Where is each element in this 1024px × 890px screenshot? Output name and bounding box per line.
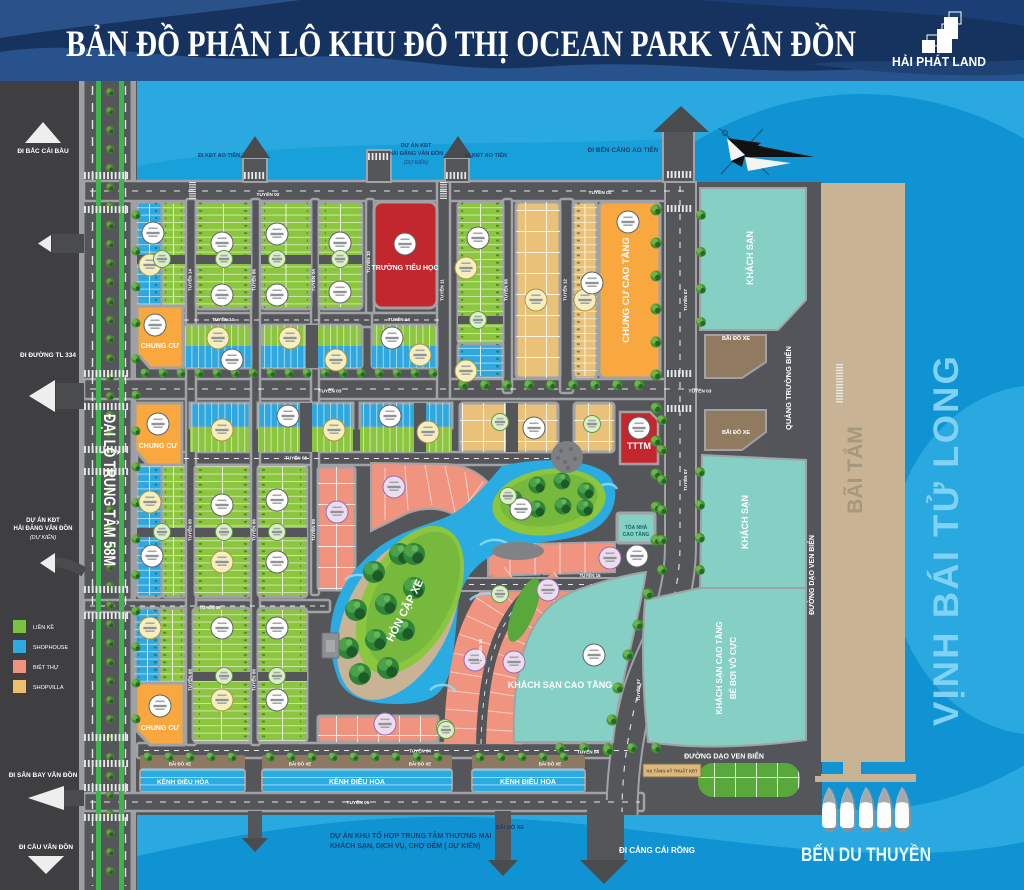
svg-text:TUYẾN 07: TUYẾN 07 bbox=[635, 679, 641, 701]
svg-text:TUYẾN 03: TUYẾN 03 bbox=[689, 388, 712, 395]
svg-text:TUYẾN 04: TUYẾN 04 bbox=[577, 749, 599, 755]
svg-text:ĐI KĐT AO TIÊN: ĐI KĐT AO TIÊN bbox=[198, 151, 240, 159]
svg-text:TUYẾN 15: TUYẾN 15 bbox=[477, 639, 483, 661]
svg-text:(DỰ KIẾN): (DỰ KIẾN) bbox=[404, 158, 428, 166]
svg-text:TUYẾN 14: TUYẾN 14 bbox=[388, 316, 410, 322]
svg-text:BÃI TẮM: BÃI TẮM bbox=[843, 426, 867, 514]
svg-text:TUYẾN 06: TUYẾN 06 bbox=[503, 279, 509, 301]
svg-text:TUYẾN 15: TUYẾN 15 bbox=[580, 573, 602, 578]
svg-text:TUYẾN 08: TUYẾN 08 bbox=[285, 455, 307, 461]
svg-text:BIỆT THỰ: BIỆT THỰ bbox=[33, 663, 59, 671]
svg-text:KHÁCH SẠN CAO TẦNG: KHÁCH SẠN CAO TẦNG bbox=[508, 680, 613, 690]
svg-text:DỰ ÁN KHU TỔ HỢP TRUNG TÂM THƯ: DỰ ÁN KHU TỔ HỢP TRUNG TÂM THƯƠNG MẠI bbox=[330, 831, 492, 840]
svg-text:TUYẾN 08: TUYẾN 08 bbox=[187, 669, 193, 691]
svg-text:ĐI ĐƯỜNG TL 334: ĐI ĐƯỜNG TL 334 bbox=[20, 350, 76, 359]
svg-text:BÃI ĐỖ XE: BÃI ĐỖ XE bbox=[289, 762, 312, 767]
svg-text:TTTM: TTTM bbox=[627, 441, 651, 451]
svg-text:TUYẾN 02: TUYẾN 02 bbox=[257, 191, 280, 198]
svg-text:CHUNG CƯ: CHUNG CƯ bbox=[139, 443, 178, 450]
svg-text:BÃI ĐỖ XE: BÃI ĐỖ XE bbox=[496, 824, 524, 831]
svg-text:BÃI ĐỖ XE: BÃI ĐỖ XE bbox=[722, 429, 750, 436]
svg-text:TUYẾN 02: TUYẾN 02 bbox=[589, 189, 612, 196]
svg-text:DỰ ÁN KĐT: DỰ ÁN KĐT bbox=[26, 517, 60, 524]
svg-text:TUYẾN 11: TUYẾN 11 bbox=[439, 279, 445, 301]
svg-text:TUYẾN 0A: TUYẾN 0A bbox=[310, 268, 316, 291]
svg-text:ĐƯỜNG DẠO VEN BIỂN: ĐƯỜNG DẠO VEN BIỂN bbox=[684, 752, 764, 761]
svg-text:KHÁCH SẠN: KHÁCH SẠN bbox=[740, 495, 750, 549]
svg-text:TRƯỜNG TIỂU HỌC: TRƯỜNG TIỂU HỌC bbox=[372, 263, 439, 272]
svg-text:TÒA NHÀ: TÒA NHÀ bbox=[625, 523, 648, 531]
svg-text:TUYẾN 07: TUYẾN 07 bbox=[682, 289, 688, 311]
svg-text:SHOPVILLA: SHOPVILLA bbox=[33, 685, 64, 691]
svg-text:TUYẾN 05: TUYẾN 05 bbox=[347, 799, 370, 806]
svg-text:BÃI ĐỖ XE: BÃI ĐỖ XE bbox=[409, 762, 432, 767]
svg-text:TUYẾN 07: TUYẾN 07 bbox=[682, 469, 688, 491]
svg-text:HẢI ĐĂNG VÂN ĐỒN: HẢI ĐĂNG VÂN ĐỒN bbox=[389, 150, 443, 157]
svg-text:ĐẠI LỘ TRUNG TÂM 58M: ĐẠI LỘ TRUNG TÂM 58M bbox=[100, 414, 119, 566]
svg-text:VỊNH BÁI TỬ LONG: VỊNH BÁI TỬ LONG bbox=[926, 354, 966, 726]
svg-text:TUYẾN 08: TUYẾN 08 bbox=[187, 519, 193, 541]
svg-text:TUYẾN 09: TUYẾN 09 bbox=[310, 519, 316, 541]
svg-text:TUYẾN 10: TUYẾN 10 bbox=[365, 251, 371, 273]
svg-text:(DỰ KIẾN): (DỰ KIẾN) bbox=[30, 533, 57, 541]
svg-text:TUYẾN 06: TUYẾN 06 bbox=[251, 269, 257, 291]
svg-text:TUYẾN 06: TUYẾN 06 bbox=[251, 669, 257, 691]
svg-text:HẢI PHÁT LAND: HẢI PHÁT LAND bbox=[892, 54, 986, 69]
svg-text:KHÁCH SẠN: KHÁCH SẠN bbox=[745, 231, 755, 285]
svg-text:BÃI ĐỖ XE: BÃI ĐỖ XE bbox=[169, 762, 192, 767]
svg-text:KHÁCH SẠN CAO TẦNG: KHÁCH SẠN CAO TẦNG bbox=[714, 622, 724, 715]
svg-text:CAO TẦNG: CAO TẦNG bbox=[623, 531, 650, 538]
svg-text:TUYẾN 06: TUYẾN 06 bbox=[251, 519, 257, 541]
svg-text:LIỀN KỀ: LIỀN KỀ bbox=[33, 624, 54, 631]
svg-text:TUYẾN 14: TUYẾN 14 bbox=[212, 316, 234, 322]
svg-text:ĐI KĐT AO TIÊN: ĐI KĐT AO TIÊN bbox=[465, 151, 507, 159]
svg-text:TUYẾN 09: TUYẾN 09 bbox=[200, 605, 222, 610]
svg-text:BỂ BƠI VÔ CỰC: BỂ BƠI VÔ CỰC bbox=[729, 637, 738, 700]
svg-text:BÃI ĐỖ XE: BÃI ĐỖ XE bbox=[722, 335, 750, 342]
svg-text:HẠ TẦNG KỸ THUẬT KĐT: HẠ TẦNG KỸ THUẬT KĐT bbox=[646, 769, 698, 774]
svg-text:ĐƯỜNG DẠO VEN BIỂN: ĐƯỜNG DẠO VEN BIỂN bbox=[807, 535, 816, 615]
svg-text:BÃI ĐỖ XE: BÃI ĐỖ XE bbox=[539, 762, 562, 767]
svg-text:TUYẾN 12: TUYẾN 12 bbox=[562, 279, 568, 301]
svg-text:CHUNG CƯ CAO TẦNG: CHUNG CƯ CAO TẦNG bbox=[621, 237, 632, 343]
svg-text:BẾN DU THUYỀN: BẾN DU THUYỀN bbox=[801, 843, 931, 866]
svg-text:CHUNG CƯ: CHUNG CƯ bbox=[141, 343, 180, 350]
svg-text:ĐI CẢNG CÁI RỒNG: ĐI CẢNG CÁI RỒNG bbox=[619, 845, 695, 855]
svg-text:TUYẾN 03: TUYẾN 03 bbox=[319, 388, 342, 395]
svg-text:SHOPHOUSE: SHOPHOUSE bbox=[33, 645, 68, 651]
svg-text:QUẢNG TRƯỜNG BIỂN: QUẢNG TRƯỜNG BIỂN bbox=[784, 346, 793, 430]
svg-text:DỰ ÁN KĐT: DỰ ÁN KĐT bbox=[401, 142, 432, 149]
svg-text:HẢI ĐĂNG VÂN ĐỒN: HẢI ĐĂNG VÂN ĐỒN bbox=[13, 525, 72, 532]
svg-text:TUYẾN 14: TUYẾN 14 bbox=[187, 269, 193, 291]
svg-text:TUYẾN 04: TUYẾN 04 bbox=[409, 748, 431, 754]
svg-text:CHUNG CƯ: CHUNG CƯ bbox=[141, 725, 180, 732]
svg-text:BẢN ĐỒ PHÂN LÔ KHU ĐÔ THỊ OCEA: BẢN ĐỒ PHÂN LÔ KHU ĐÔ THỊ OCEAN PARK VÂN… bbox=[66, 21, 856, 65]
